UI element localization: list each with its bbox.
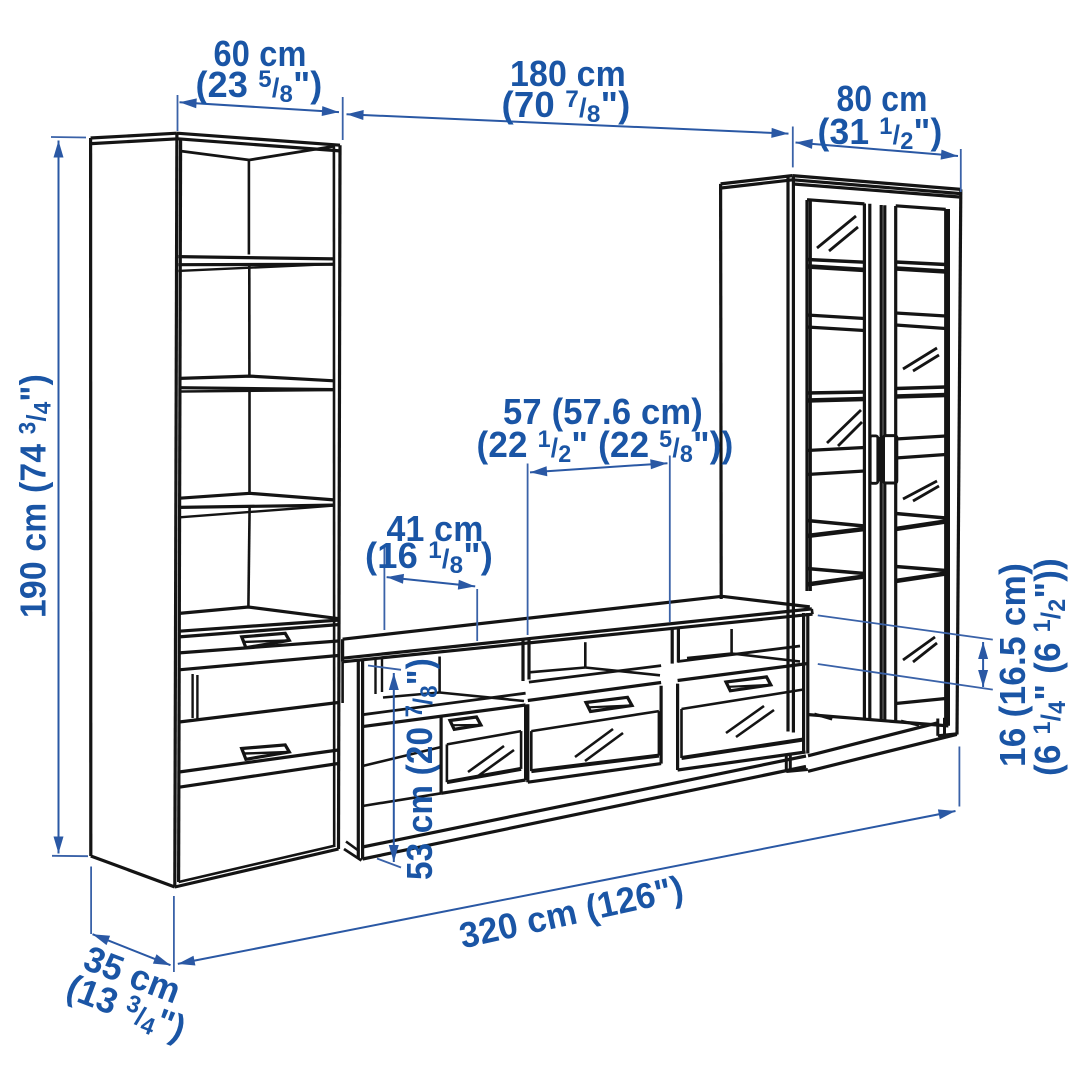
svg-text:(22 1/2" (22 5/8")): (22 1/2" (22 5/8")) [477, 424, 734, 468]
svg-text:(6 1/4" (6 1/2")): (6 1/4" (6 1/2")) [1027, 558, 1071, 776]
